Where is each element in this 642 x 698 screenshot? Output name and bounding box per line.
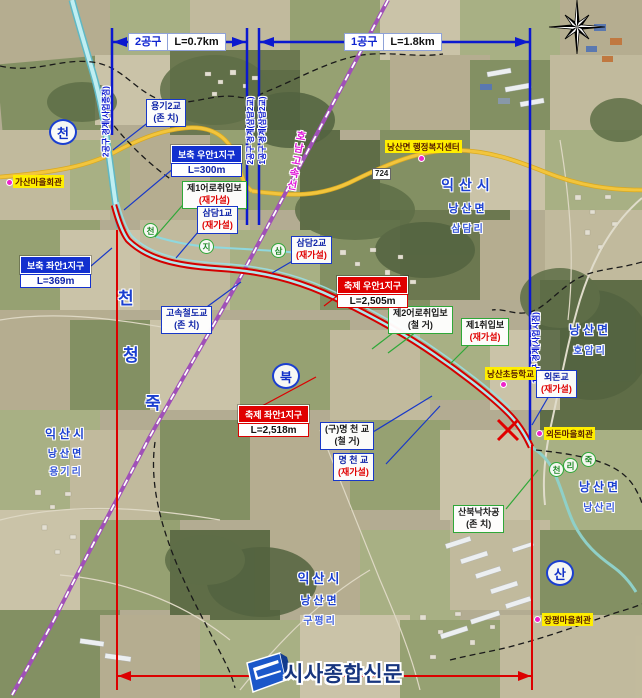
- weir-status: (존 치): [458, 519, 499, 531]
- bridge-label-myeongcheon: 명 천 교 (재가설): [333, 453, 374, 481]
- zone-length: L=300m: [171, 163, 242, 177]
- stream-letter-jukcheong-3: 죽: [145, 389, 161, 414]
- poi-dot: [418, 155, 425, 162]
- bridge-name: 고속철도교: [166, 308, 207, 320]
- weir-label-intake1: 제1취입보 (재가설): [461, 318, 509, 346]
- poi-label-oedon-hall: 외돈마을회관: [544, 427, 595, 440]
- zone-title: 보축 우안1지구: [171, 145, 242, 163]
- stream-letter-green-upper-3: 삼: [271, 243, 286, 258]
- zone-length: L=2,518m: [238, 423, 309, 437]
- zone-title: 보축 좌안1지구: [20, 256, 91, 274]
- region-ri: 호암리: [556, 342, 624, 357]
- region-label-samdam: 익산시 낭산면 삼담리: [428, 175, 508, 235]
- map-canvas: 2공구 L=0.7km 1공구 L=1.8km 2공구 경계(사업종점) 2공구…: [0, 0, 642, 698]
- bridge-status: (철 거): [325, 436, 369, 448]
- stream-letter-circled-cheon: 천: [49, 119, 77, 145]
- region-city: 익산시: [428, 175, 508, 195]
- bridge-label-ktx: 고속철도교 (존 치): [161, 306, 212, 334]
- weir-label-fishway1: 제1어로취입보 (재가설): [182, 181, 247, 209]
- weir-name: 제1어로취입보: [187, 183, 242, 195]
- poi-dot: [534, 616, 541, 623]
- region-myeon: 낭산면: [566, 478, 634, 495]
- boundary-text-mid-left: 2공구 경계(삼담2교): [245, 78, 256, 183]
- region-ri: 구평리: [282, 612, 358, 627]
- bridge-name: 삼담1교: [202, 208, 233, 220]
- weir-label-fishway2: 제2어로취입보 (철 거): [388, 306, 453, 334]
- zone-label-bochuk-left: 보축 좌안1지구 L=369m: [20, 256, 91, 288]
- poi-dot: [6, 179, 13, 186]
- region-myeon: 낭산면: [428, 200, 508, 216]
- watermark-text: 시사종합신문: [284, 658, 403, 688]
- boundary-text-left: 2공구 경계(사업종점): [101, 60, 112, 184]
- poi-dot: [536, 430, 543, 437]
- region-label-hoam: 낭산면 호암리: [556, 321, 624, 357]
- weir-name: 제2어로취입보: [393, 308, 448, 320]
- bridge-name: 삼담2교: [296, 238, 327, 250]
- region-city: 익산시: [32, 425, 100, 442]
- boundary-text-mid-right: 1공구 경계(삼담2교): [257, 78, 268, 183]
- bridge-status: (재가설): [541, 384, 572, 396]
- section2-dimension-label: 2공구 L=0.7km: [128, 33, 226, 51]
- bridge-status: (존 치): [166, 320, 207, 332]
- zone-length: L=369m: [20, 274, 91, 288]
- bridge-status: (존 치): [151, 113, 181, 125]
- bridge-name: 용기2교: [151, 101, 181, 113]
- bridge-label-old-myeongcheon: (구)명 천 교 (철 거): [320, 422, 374, 450]
- section1-name: 1공구: [344, 33, 384, 51]
- region-ri: 낭산리: [566, 499, 634, 514]
- region-label-nangsan: 낭산면 낭산리: [566, 478, 634, 514]
- stream-letter-circled-san: 산: [546, 560, 574, 586]
- stream-letter-green-upper-1: 천: [143, 223, 158, 238]
- stream-letter-green-lower-2: 리: [563, 458, 578, 473]
- weir-status: (철 거): [393, 320, 448, 332]
- bridge-status: (재가설): [202, 220, 233, 232]
- bridge-label-samdam2: 삼담2교 (재가설): [291, 236, 332, 264]
- poi-label-gasan-hall: 가산마을회관: [13, 175, 64, 188]
- poi-label-nangsan-school: 낭산초등학교: [485, 367, 536, 380]
- zone-title: 축제 좌안1지구: [238, 405, 309, 423]
- bridge-label-yonggi2: 용기2교 (존 치): [146, 99, 186, 127]
- section1-dimension-label: 1공구 L=1.8km: [344, 33, 442, 51]
- weir-label-sanbuk-drop: 산북낙차공 (존 치): [453, 505, 504, 533]
- region-myeon: 낭산면: [32, 445, 100, 460]
- weir-status: (재가설): [187, 195, 242, 207]
- poi-label-nangsan-center: 낭산면 행정복지센터: [385, 140, 462, 153]
- weir-name: 제1취입보: [466, 320, 504, 332]
- region-label-yonggi: 익산시 낭산면 용기리: [32, 425, 100, 478]
- bridge-name: (구)명 천 교: [325, 424, 369, 436]
- section1-length: L=1.8km: [384, 33, 441, 51]
- bridge-name: 외돈교: [541, 372, 572, 384]
- stream-letter-jukcheong-2: 청: [123, 341, 139, 366]
- bridge-name: 명 천 교: [338, 455, 369, 467]
- bridge-label-samdam1: 삼담1교 (재가설): [197, 206, 238, 234]
- weir-name: 산북낙차공: [458, 507, 499, 519]
- zone-label-bochuk-right: 보축 우안1지구 L=300m: [171, 145, 242, 177]
- region-myeon: 낭산면: [282, 592, 358, 608]
- bridge-status: (재가설): [296, 250, 327, 262]
- stream-letter-circled-buk: 북: [272, 363, 300, 389]
- region-myeon: 낭산면: [556, 321, 624, 338]
- stream-letter-green-lower-1: 천: [549, 462, 564, 477]
- weir-status: (재가설): [466, 332, 504, 344]
- road-badge-724: 724: [372, 168, 391, 180]
- zone-label-chukje-left: 축제 좌안1지구 L=2,518m: [238, 405, 309, 437]
- region-city: 익산시: [282, 568, 358, 587]
- stream-letter-green-upper-2: 지: [199, 239, 214, 254]
- section2-name: 2공구: [128, 33, 168, 51]
- zone-length: L=2,505m: [337, 294, 408, 308]
- poi-label-jangpyeong-hall: 장평마을회관: [542, 613, 593, 626]
- region-label-gupyeong: 익산시 낭산면 구평리: [282, 568, 358, 627]
- bridge-label-oedon: 외돈교 (재가설): [536, 370, 577, 398]
- section2-length: L=0.7km: [168, 33, 225, 51]
- region-ri: 삼담리: [428, 220, 508, 235]
- zone-title: 축제 우안1지구: [337, 276, 408, 294]
- watermark-logo: 시사종합신문: [284, 658, 403, 688]
- bridge-status: (재가설): [338, 467, 369, 479]
- zone-label-chukje-right: 축제 우안1지구 L=2,505m: [337, 276, 408, 308]
- poi-dot: [500, 381, 507, 388]
- stream-letter-jukcheong-1: 천: [118, 284, 134, 309]
- stream-letter-green-lower-3: 죽: [581, 452, 596, 467]
- region-ri: 용기리: [32, 463, 100, 478]
